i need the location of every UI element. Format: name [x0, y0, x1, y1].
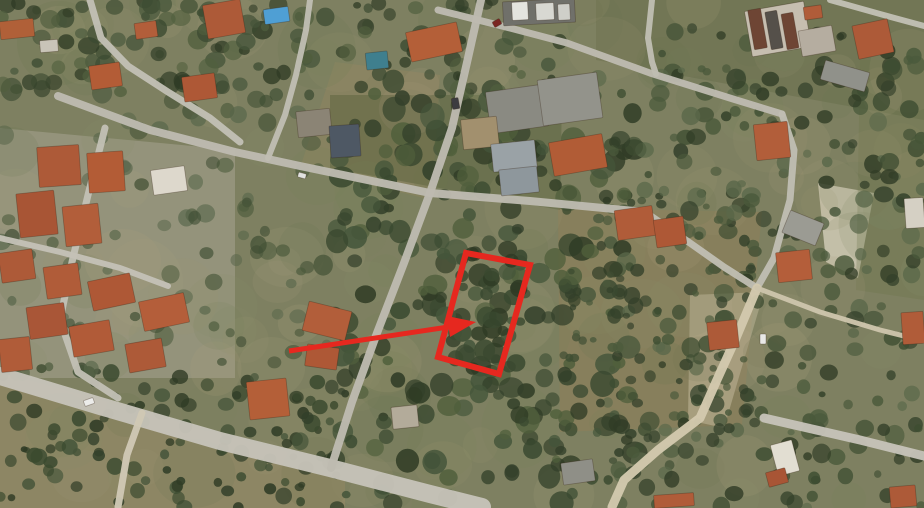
tree-canopy: [810, 409, 828, 425]
tree-canopy: [877, 245, 890, 258]
tree-canopy: [882, 60, 902, 80]
building-roof: [537, 72, 603, 126]
tree-canopy: [138, 382, 151, 395]
tree-canopy: [353, 2, 361, 9]
tree-canopy: [672, 305, 687, 320]
tree-canopy: [626, 376, 637, 385]
tree-canopy: [726, 205, 742, 221]
tree-canopy: [808, 472, 820, 485]
tree-canopy: [268, 356, 282, 368]
tree-canopy: [71, 481, 83, 492]
tree-canopy: [678, 443, 694, 459]
tree-canopy: [413, 299, 424, 310]
tree-canopy: [881, 80, 896, 96]
tree-canopy: [634, 353, 645, 364]
tree-canopy: [302, 412, 314, 424]
tree-canopy: [817, 110, 833, 123]
tree-canopy: [740, 356, 748, 362]
tree-canopy: [406, 387, 423, 405]
tree-canopy: [579, 336, 587, 344]
tree-canopy: [523, 440, 542, 459]
tree-canopy: [114, 86, 127, 97]
tree-canopy: [914, 424, 922, 432]
tree-canopy: [361, 196, 381, 213]
tree-canopy: [347, 254, 362, 267]
tree-canopy: [376, 415, 392, 429]
tree-canopy: [481, 470, 495, 484]
tree-canopy: [276, 244, 290, 256]
vehicle: [451, 97, 460, 109]
tree-canopy: [607, 287, 614, 293]
tree-canopy: [581, 244, 599, 258]
tree-canopy: [558, 367, 572, 382]
tree-canopy: [862, 265, 872, 274]
tree-canopy: [22, 478, 35, 489]
tree-canopy: [141, 476, 150, 485]
tree-canopy: [603, 280, 611, 288]
tree-canopy: [384, 8, 396, 21]
tree-canopy: [157, 220, 171, 231]
building-roof: [16, 190, 58, 238]
tree-canopy: [676, 154, 692, 170]
tree-canopy: [653, 336, 661, 345]
tree-canopy: [26, 5, 41, 19]
tree-canopy: [579, 287, 596, 302]
building-roof: [37, 145, 82, 188]
tree-canopy: [106, 0, 123, 15]
tree-canopy: [420, 103, 445, 130]
building-roof: [803, 5, 823, 20]
tree-canopy: [573, 287, 582, 296]
tree-canopy: [130, 312, 141, 321]
building-roof: [614, 206, 656, 241]
tree-canopy: [659, 424, 672, 436]
building-roof: [0, 336, 33, 372]
tree-canopy: [626, 447, 639, 459]
tree-canopy: [205, 274, 223, 291]
tree-canopy: [519, 417, 529, 427]
tree-canopy: [391, 372, 406, 387]
tree-canopy: [856, 420, 874, 437]
tree-canopy: [166, 438, 175, 446]
tree-canopy: [822, 157, 833, 168]
tree-canopy: [627, 323, 634, 330]
tree-canopy: [72, 411, 86, 427]
tree-canopy: [238, 231, 249, 241]
tree-canopy: [281, 478, 289, 486]
tree-canopy: [711, 167, 722, 176]
tree-canopy: [199, 306, 210, 315]
tree-canopy: [658, 50, 666, 57]
tree-canopy: [593, 428, 602, 437]
tree-canopy: [170, 378, 179, 385]
tree-canopy: [239, 203, 250, 212]
tree-canopy: [355, 285, 376, 303]
tree-canopy: [749, 418, 760, 428]
tree-canopy: [640, 412, 660, 431]
tree-canopy: [614, 448, 624, 457]
building-roof: [561, 459, 596, 485]
tree-canopy: [916, 159, 924, 167]
tree-canopy: [669, 411, 680, 421]
tree-canopy: [277, 65, 291, 80]
tree-canopy: [286, 279, 297, 288]
tree-canopy: [549, 435, 561, 447]
tree-canopy: [310, 375, 326, 389]
tree-canopy: [596, 399, 605, 408]
tree-canopy: [46, 444, 56, 453]
building-roof: [150, 166, 187, 195]
tree-canopy: [714, 423, 725, 435]
tree-canopy: [326, 229, 348, 253]
building-roof: [707, 320, 740, 351]
tree-canopy: [75, 28, 88, 38]
tree-canopy: [749, 395, 757, 401]
tree-canopy: [52, 61, 66, 75]
tree-canopy: [541, 58, 556, 72]
tree-canopy: [798, 83, 813, 99]
tree-canopy: [172, 491, 185, 504]
tree-canopy: [236, 472, 246, 481]
tree-canopy: [209, 321, 220, 331]
tree-canopy: [424, 69, 435, 80]
tree-canopy: [232, 391, 241, 400]
tree-canopy: [775, 86, 787, 96]
tree-canopy: [644, 370, 655, 382]
tree-canopy: [298, 482, 305, 488]
tree-canopy: [757, 375, 767, 384]
tree-canopy: [568, 269, 575, 275]
tree-canopy: [258, 113, 276, 132]
tree-canopy: [201, 378, 214, 391]
tree-canopy: [206, 157, 220, 170]
tree-canopy: [743, 193, 759, 207]
building-roof: [125, 338, 166, 373]
tree-canopy: [682, 107, 701, 125]
tree-canopy: [766, 375, 779, 389]
tree-canopy: [326, 417, 334, 425]
tree-canopy: [664, 471, 679, 488]
tree-canopy: [289, 309, 306, 323]
building-roof: [536, 3, 555, 21]
tree-canopy: [43, 465, 54, 477]
tree-canopy: [484, 268, 499, 281]
building-roof: [246, 378, 290, 420]
tree-canopy: [536, 144, 548, 155]
tree-canopy: [296, 497, 305, 506]
tree-canopy: [8, 494, 16, 501]
tree-canopy: [55, 441, 66, 452]
tree-canopy: [659, 361, 666, 368]
tree-canopy: [231, 254, 243, 266]
tree-canopy: [756, 447, 773, 461]
tree-canopy: [637, 182, 653, 199]
tree-canopy: [807, 491, 818, 502]
tree-canopy: [644, 433, 653, 442]
tree-canopy: [716, 296, 727, 308]
tree-canopy: [470, 385, 488, 404]
building-roof: [202, 0, 245, 39]
tree-canopy: [109, 230, 120, 240]
tree-canopy: [848, 94, 861, 107]
tree-canopy: [2, 214, 15, 225]
tree-canopy: [253, 62, 263, 71]
tree-canopy: [480, 288, 493, 301]
tree-canopy: [32, 58, 43, 68]
tree-canopy: [573, 385, 588, 398]
tree-canopy: [316, 8, 334, 27]
tree-canopy: [7, 391, 22, 404]
tree-canopy: [250, 373, 259, 381]
tree-canopy: [366, 439, 384, 456]
tree-canopy: [656, 255, 666, 265]
tree-canopy: [421, 234, 443, 251]
tree-canopy: [340, 208, 353, 221]
tree-canopy: [714, 216, 724, 224]
tree-canopy: [607, 271, 614, 278]
tree-canopy: [845, 268, 858, 280]
tree-canopy: [877, 302, 886, 310]
satellite-scene: [0, 0, 924, 508]
tree-canopy: [430, 373, 453, 397]
tree-canopy: [247, 91, 266, 108]
tree-canopy: [517, 70, 526, 79]
building-roof: [365, 51, 389, 70]
tree-canopy: [368, 88, 381, 100]
tree-canopy: [710, 365, 717, 372]
building-roof: [40, 39, 59, 53]
tree-canopy: [275, 488, 292, 505]
tree-canopy: [607, 343, 617, 352]
tree-canopy: [768, 229, 778, 237]
tree-canopy: [847, 342, 864, 356]
tree-canopy: [249, 5, 258, 13]
building-roof: [87, 151, 126, 193]
tree-canopy: [282, 439, 292, 448]
tree-canopy: [696, 455, 709, 466]
tree-canopy: [843, 400, 853, 410]
building-roof: [263, 6, 290, 24]
tree-canopy: [848, 139, 858, 148]
tree-canopy: [342, 491, 351, 498]
tree-canopy: [829, 139, 840, 149]
tree-canopy: [639, 479, 655, 496]
tree-canopy: [805, 318, 817, 329]
tree-canopy: [565, 423, 578, 437]
tree-canopy: [292, 432, 309, 450]
tree-canopy: [505, 465, 518, 477]
tree-canopy: [549, 179, 562, 191]
tree-canopy: [623, 103, 641, 123]
tree-canopy: [366, 217, 381, 233]
tree-canopy: [872, 396, 883, 407]
tree-canopy: [21, 446, 28, 452]
tree-canopy: [682, 337, 701, 357]
tree-canopy: [640, 295, 652, 306]
vehicle: [760, 334, 766, 344]
tree-canopy: [271, 426, 282, 436]
tree-canopy: [45, 362, 54, 371]
tree-canopy: [780, 491, 794, 505]
tree-canopy: [656, 200, 666, 209]
tree-canopy: [726, 69, 746, 90]
tree-canopy: [230, 106, 247, 123]
tree-canopy: [762, 72, 780, 87]
tree-canopy: [339, 44, 356, 62]
tree-canopy: [408, 1, 423, 14]
building-roof: [558, 4, 571, 21]
tree-canopy: [570, 304, 576, 310]
tree-canopy: [93, 450, 105, 461]
tree-canopy: [906, 48, 921, 64]
building-roof: [889, 485, 917, 508]
tree-canopy: [244, 427, 257, 438]
tree-canopy: [651, 85, 670, 102]
building-roof: [753, 121, 791, 160]
tree-canopy: [364, 119, 381, 137]
tree-canopy: [437, 248, 450, 259]
tree-canopy: [739, 235, 750, 247]
tree-canopy: [218, 398, 234, 411]
building-roof: [512, 2, 529, 21]
tree-canopy: [559, 279, 572, 293]
tree-canopy: [383, 356, 394, 365]
tree-canopy: [10, 414, 27, 431]
tree-canopy: [88, 433, 100, 446]
tree-canopy: [703, 204, 710, 210]
tree-canopy: [660, 318, 677, 334]
tree-canopy: [422, 450, 447, 474]
tree-canopy: [855, 191, 873, 208]
tree-canopy: [200, 247, 214, 259]
tree-canopy: [151, 47, 167, 61]
tree-canopy: [659, 186, 669, 197]
tree-canopy: [616, 275, 624, 282]
tree-canopy: [396, 449, 419, 473]
tree-canopy: [819, 391, 826, 397]
building-roof: [62, 203, 102, 247]
tree-canopy: [74, 57, 88, 69]
tree-canopy: [292, 393, 301, 401]
tree-canopy: [850, 214, 868, 234]
tree-canopy: [188, 174, 203, 189]
tree-canopy: [897, 401, 907, 411]
tree-canopy: [604, 475, 613, 485]
tree-canopy: [756, 211, 772, 227]
tree-canopy: [172, 480, 183, 492]
tree-canopy: [312, 400, 328, 414]
tree-canopy: [812, 248, 828, 262]
tree-canopy: [358, 26, 372, 38]
tree-canopy: [652, 308, 661, 317]
tree-canopy: [260, 226, 270, 237]
tree-canopy: [63, 8, 75, 18]
tree-canopy: [767, 335, 786, 351]
building-roof: [901, 311, 924, 344]
tree-canopy: [26, 448, 42, 463]
tree-canopy: [190, 341, 241, 396]
tree-canopy: [390, 302, 410, 319]
tree-canopy: [609, 415, 629, 433]
tree-canopy: [171, 10, 191, 26]
building-roof: [0, 18, 35, 39]
tree-canopy: [536, 369, 554, 387]
tree-canopy: [666, 23, 683, 40]
tree-canopy: [627, 199, 635, 207]
tree-canopy: [900, 100, 919, 118]
tree-canopy: [264, 483, 276, 494]
tree-canopy: [706, 433, 719, 447]
tree-canopy: [662, 334, 675, 345]
tree-canopy: [724, 423, 735, 433]
tree-canopy: [877, 424, 890, 436]
tree-canopy: [40, 10, 60, 29]
tree-canopy: [573, 330, 580, 336]
tree-canopy: [705, 118, 721, 135]
tree-canopy: [800, 345, 817, 361]
tree-canopy: [628, 392, 638, 401]
tree-canopy: [886, 370, 895, 380]
tree-canopy: [904, 386, 920, 402]
tree-canopy: [666, 264, 678, 277]
building-roof: [852, 19, 894, 60]
tree-canopy: [154, 388, 170, 402]
tree-canopy: [838, 32, 847, 40]
tree-canopy: [232, 78, 247, 91]
tree-canopy: [569, 354, 579, 362]
tree-canopy: [599, 190, 613, 203]
tree-canopy: [163, 466, 172, 474]
tree-canopy: [236, 336, 246, 347]
tree-canopy: [177, 62, 188, 73]
tree-canopy: [325, 380, 338, 394]
tree-canopy: [870, 170, 881, 180]
tree-canopy: [550, 409, 562, 419]
tree-canopy: [788, 429, 795, 435]
tree-canopy: [216, 80, 230, 94]
tree-canopy: [597, 241, 606, 251]
building-roof: [499, 166, 540, 196]
tree-canopy: [110, 33, 125, 47]
tree-canopy: [395, 90, 410, 105]
tree-canopy: [617, 89, 626, 98]
tree-canopy: [73, 448, 81, 456]
tree-canopy: [483, 312, 503, 329]
tree-canopy: [829, 207, 840, 217]
tree-canopy: [680, 359, 693, 370]
tree-canopy: [717, 435, 774, 496]
tree-canopy: [869, 112, 887, 131]
building-roof: [904, 197, 924, 228]
building-roof: [88, 62, 122, 90]
tree-canopy: [820, 365, 838, 381]
tree-canopy: [499, 377, 524, 398]
tree-canopy: [250, 236, 266, 254]
tree-canopy: [395, 145, 415, 167]
tree-canopy: [570, 403, 587, 420]
tree-canopy: [784, 311, 802, 328]
tree-canopy: [379, 167, 390, 178]
tree-canopy: [874, 186, 894, 202]
building-roof: [26, 303, 68, 340]
tree-canopy: [593, 214, 604, 224]
tree-canopy: [58, 34, 74, 49]
tree-canopy: [691, 432, 701, 442]
building-roof: [134, 21, 158, 40]
tree-canopy: [10, 68, 18, 75]
tree-canopy: [314, 255, 333, 276]
tree-canopy: [739, 384, 749, 394]
